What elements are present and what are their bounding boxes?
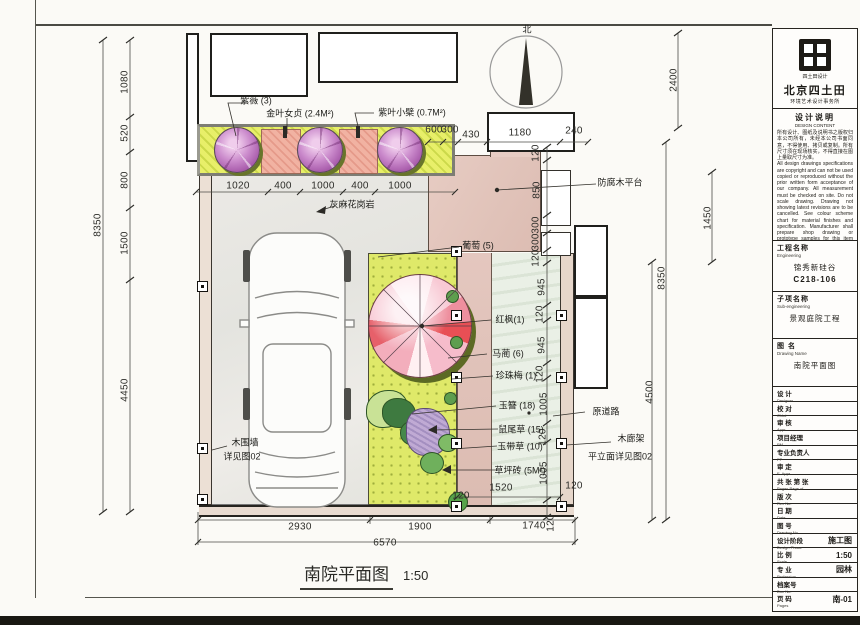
plan-label-layer: 北紫薇 (3)金叶女贞 (2.4M²)紫叶小檗 (0.7M²)灰麻花岗岩防腐木平… xyxy=(0,0,860,625)
row-value: 施工图 xyxy=(828,535,857,546)
titleblock-row-label: 设 计Designer xyxy=(773,387,793,401)
title-block: 四土田设计 北京四土田 环境艺术设计事务所 设计说明 DESIGN CONTEN… xyxy=(772,28,858,612)
row-label-cn: 专业负责人 xyxy=(777,447,810,457)
row-label-cn: 专 业 xyxy=(777,564,796,574)
drawing-sheet: { "meta": {"drawing_title": "南院平面图", "dr… xyxy=(0,0,860,625)
plan-label: 原道路 xyxy=(592,405,619,418)
plan-label: 红枫(1) xyxy=(496,313,525,326)
sub-project-label: 子项名称 xyxy=(777,294,853,304)
project-code-value: C218-106 xyxy=(777,275,853,284)
sheet-title: 南院平面图 1:50 xyxy=(300,560,428,590)
plan-label: 灰麻花岗岩 xyxy=(329,198,374,211)
titleblock-row-label: 共 张 第 张Pages Page of xyxy=(773,475,808,489)
titleblock-row-label: 图 号Drawing No. xyxy=(773,519,799,533)
sub-project-label-en: Sub-engineering xyxy=(777,304,853,309)
drawing-name-value: 南院平面图 xyxy=(777,360,853,371)
titleblock-row: 设 计Designer xyxy=(773,387,857,402)
company-subtitle: 环境艺术设计事务所 xyxy=(773,98,857,105)
row-label-cn: 版 次 xyxy=(777,491,792,501)
drawing-name-section: 图 名 Drawing Name 南院平面图 xyxy=(773,339,857,387)
plan-label: 金叶女贞 (2.4M²) xyxy=(266,107,334,120)
drawing-name-label-en: Drawing Name xyxy=(777,351,853,356)
project-name-label-en: Engineering xyxy=(777,253,853,258)
titleblock-row: 共 张 第 张Pages Page of xyxy=(773,475,857,490)
design-notes-cn: 所有设计、图纸及说明书之版权归本公司所有，未经本公司书面同意，不得使用、拷贝或复… xyxy=(777,130,853,161)
titleblock-row-label: 页 码Pages xyxy=(773,592,792,607)
row-value: 1:50 xyxy=(836,551,857,560)
titleblock-row-label: 审 定E. Appr xyxy=(773,460,792,474)
company-name: 北京四土田 xyxy=(773,82,857,98)
titleblock-row: 设计阶段Design Phase施工图 xyxy=(773,534,857,549)
row-label-cn: 比 例 xyxy=(777,549,792,559)
row-value: 南-01 xyxy=(832,594,857,605)
titleblock-row: 审 定E. Appr xyxy=(773,460,857,475)
titleblock-rows: 设 计Designer校 对Chkd审 核Appr项目经理PM专业负责人PP审 … xyxy=(773,387,857,607)
row-value: 园林 xyxy=(836,564,857,575)
titleblock-row: 页 码Pages南-01 xyxy=(773,592,857,607)
titleblock-row-label: 专 业Profession xyxy=(773,563,796,577)
titleblock-row: 校 对Chkd xyxy=(773,402,857,417)
titleblock-row: 专 业Profession园林 xyxy=(773,563,857,578)
row-label-cn: 页 码 xyxy=(777,593,792,603)
titleblock-row-label: 项目经理PM xyxy=(773,431,803,445)
titleblock-row-label: 版 次Rev No. xyxy=(773,490,792,504)
titleblock-row: 审 核Appr xyxy=(773,416,857,431)
plan-label: 珍珠梅 (1) xyxy=(496,369,537,382)
titleblock-row: 版 次Rev No. xyxy=(773,490,857,505)
row-label-cn: 审 核 xyxy=(777,417,792,427)
titleblock-row: 图 号Drawing No. xyxy=(773,519,857,534)
titleblock-row-label: 日 期Date xyxy=(773,504,792,518)
title-block-logo-section: 四土田设计 北京四土田 环境艺术设计事务所 xyxy=(773,29,857,109)
plan-label: 木廊架 xyxy=(617,432,644,445)
plan-label: 玉簪 (18) xyxy=(499,399,536,412)
sheet-title-scale: 1:50 xyxy=(403,568,428,583)
titleblock-row-label: 比 例Scale xyxy=(773,548,792,562)
plan-label: 葡萄 (5) xyxy=(462,239,494,252)
titleblock-row-label: 专业负责人PP xyxy=(773,446,810,460)
design-notes-section: 设计说明 DESIGN CONTENT 所有设计、图纸及说明书之版权归本公司所有… xyxy=(773,109,857,241)
plan-label: 紫叶小檗 (0.7M²) xyxy=(378,106,446,119)
plan-label: 北 xyxy=(522,23,531,36)
project-name-value: 锦秀新硅谷 xyxy=(777,262,853,273)
plan-label: 防腐木平台 xyxy=(597,176,642,189)
plan-label: 马蔺 (6) xyxy=(492,347,524,360)
titleblock-row: 专业负责人PP xyxy=(773,446,857,461)
design-notes-header: 设计说明 xyxy=(777,112,853,123)
titleblock-row-label: 校 对Chkd xyxy=(773,402,792,416)
titleblock-row-label: 审 核Appr xyxy=(773,416,792,430)
titleblock-row: 日 期Date xyxy=(773,504,857,519)
project-name-label: 工程名称 xyxy=(777,243,853,253)
titleblock-row-label: 档案号Doc No. xyxy=(773,578,797,592)
plan-label: 草坪砖 (5M²) xyxy=(495,464,546,477)
row-label-cn: 档案号 xyxy=(777,579,797,589)
drawing-name-label: 图 名 xyxy=(777,341,853,351)
titleblock-row: 比 例Scale1:50 xyxy=(773,548,857,563)
plan-label: 平立面详见图02 xyxy=(588,450,652,463)
plan-label: 紫薇 (3) xyxy=(240,94,272,107)
row-label-en: Pages xyxy=(777,603,792,608)
sheet-title-text: 南院平面图 xyxy=(300,560,393,590)
company-logo-icon xyxy=(799,39,831,71)
row-label-cn: 设计阶段 xyxy=(777,535,803,545)
logo-caption: 四土田设计 xyxy=(773,73,857,80)
row-label-cn: 图 号 xyxy=(777,520,799,530)
titleblock-row: 项目经理PM xyxy=(773,431,857,446)
row-label-cn: 日 期 xyxy=(777,505,792,515)
plan-label: 详见图02 xyxy=(223,450,260,463)
titleblock-row: 档案号Doc No. xyxy=(773,578,857,593)
plan-label: 鼠尾草 (15) xyxy=(498,423,544,436)
row-label-cn: 校 对 xyxy=(777,403,792,413)
project-name-section: 工程名称 Engineering 锦秀新硅谷 C218-106 xyxy=(773,241,857,292)
plan-label: 木围墙 xyxy=(231,436,258,449)
sub-project-value: 景观庭院工程 xyxy=(777,313,853,324)
row-label-cn: 设 计 xyxy=(777,388,793,398)
row-label-cn: 共 张 第 张 xyxy=(777,476,808,486)
row-label-cn: 项目经理 xyxy=(777,432,803,442)
titleblock-row-label: 设计阶段Design Phase xyxy=(773,534,803,548)
row-label-cn: 审 定 xyxy=(777,461,792,471)
plan-label: 玉带草 (10) xyxy=(497,440,543,453)
sub-project-section: 子项名称 Sub-engineering 景观庭院工程 xyxy=(773,292,857,339)
design-notes-en: All design drawings specifications are c… xyxy=(777,161,853,241)
design-notes-header-en: DESIGN CONTENT xyxy=(777,123,853,128)
